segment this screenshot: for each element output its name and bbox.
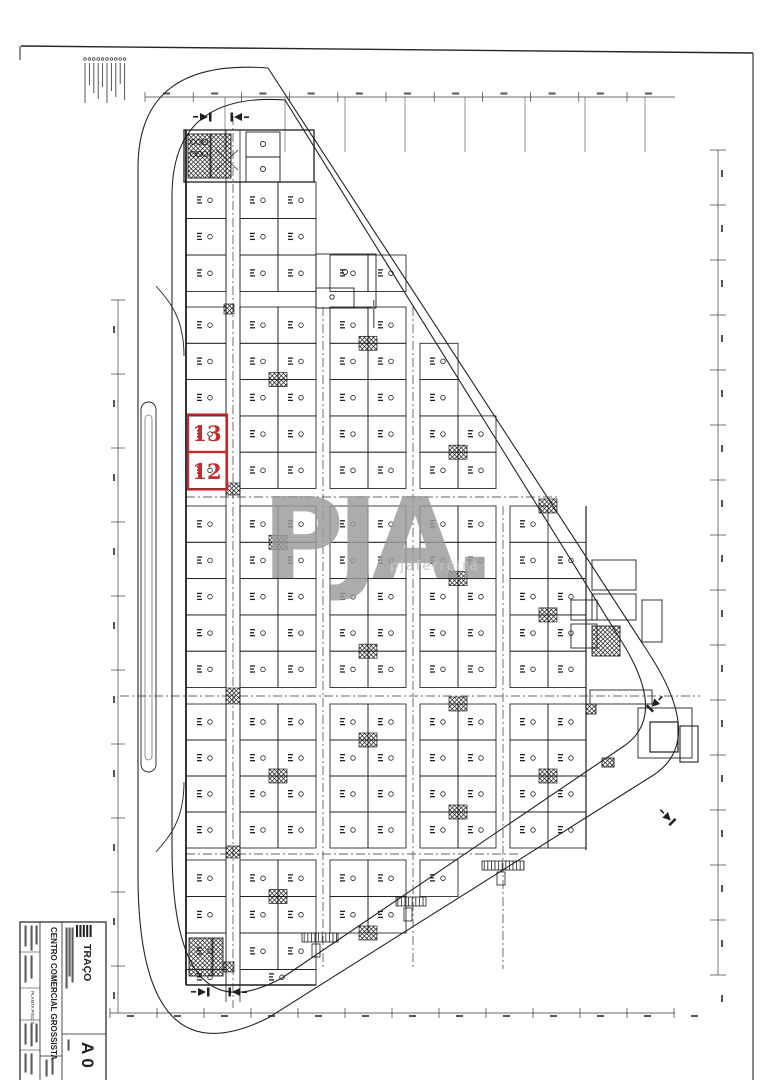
unit-number-mark [288,947,293,948]
corridor-door-core [226,483,240,495]
dim-label [721,995,723,1002]
unit-column-dot [441,756,446,761]
arrow-head [234,113,242,121]
unit-number-mark [250,430,255,431]
arrow-bar [209,113,212,122]
unit-number-mark [520,599,525,600]
unit-number-mark [250,196,255,197]
ramp [302,933,338,942]
unit-number-mark [197,269,202,270]
dim-label [597,1015,604,1017]
unit-column-dot [569,828,574,833]
unit-number-mark [288,950,292,951]
unit-number-mark [558,671,563,672]
unit-cell [186,182,226,219]
unit-number-mark [250,877,254,878]
intersection-core [359,926,377,940]
unit-number-mark [197,724,202,725]
intersection-core [449,445,467,459]
unit-number-mark [520,718,525,719]
median-island-inner [145,415,152,760]
unit-number-mark [340,757,344,758]
unit-number-mark [288,472,293,473]
unit-number-mark [378,635,383,636]
dim-label [356,93,363,95]
unit-number-mark [250,665,255,666]
unit-number-mark [250,668,254,669]
unit-number-mark [197,520,202,521]
unit-number-mark [288,665,293,666]
unit-number-mark [430,436,435,437]
unit-column-dot [569,720,574,725]
unit-number-mark [250,269,255,270]
unit-number-mark [340,357,345,358]
unit-column-dot [479,631,484,636]
micro-text-bar [25,1024,26,1044]
unit-number-mark [378,665,383,666]
unit-number-mark [558,754,563,755]
unit-number-mark [520,832,525,833]
unit-number-mark [197,754,202,755]
unit-column-dot [299,792,304,797]
unit-number-mark [520,562,525,563]
dim-label [404,93,411,95]
unit-number-mark [197,321,202,322]
unit-column-dot [531,828,536,833]
unit-cell [420,651,458,687]
unit-cell [240,933,278,970]
unit-number-mark [378,269,383,270]
unit-number-mark [250,593,255,594]
drawing-title: PLANTA PISO 0 [30,991,35,1025]
unit-number-mark [197,635,202,636]
legend-bullet [119,58,122,61]
unit-cell [330,380,368,416]
arrow-tail [660,809,665,814]
unit-column-dot [531,792,536,797]
unit-column-dot [531,756,536,761]
unit-column-dot [261,876,266,881]
unit-number-mark [520,593,525,594]
unit-number-mark [288,635,293,636]
unit-column-dot [479,720,484,725]
unit-column-dot [208,912,213,917]
unit-column-dot [261,468,266,473]
firm-logo-icon [76,925,92,937]
unit-number-mark [558,721,562,722]
unit-cell [278,182,316,219]
unit-number-mark [558,635,563,636]
unit-number-mark [520,793,524,794]
unit-cell [548,651,586,687]
unit-column-dot [389,667,394,672]
unit-number-mark [430,472,435,473]
unit-number-mark [520,596,524,597]
intersection-core [539,499,557,513]
unit-number-mark [340,911,345,912]
dim-label [721,280,723,287]
unit-number-mark [197,324,201,325]
dim-label [721,940,723,947]
arrow-tail [242,991,247,993]
unit-number-mark [378,793,382,794]
unit-column-dot [441,876,446,881]
unit-number-mark [340,914,344,915]
unit-number-mark [378,718,383,719]
unit-number-mark [250,917,255,918]
unit-cell [186,219,226,256]
unit-number-mark [197,793,201,794]
unit-cell [278,219,316,256]
unit-column-dot [208,756,213,761]
unit-cell [368,860,406,897]
unit-number-mark [520,796,525,797]
unit-number-mark [558,796,563,797]
unit-number-mark [197,275,202,276]
title-block: TRAÇO CENTRO COMERCIAL GROSSISTA PLANTA … [20,922,106,1080]
unit-number-mark [378,360,382,361]
unit-column-dot [441,720,446,725]
unit-number-mark [430,826,435,827]
arrow-tail [244,116,249,118]
arrow-bar [229,988,232,997]
unit-number-mark [250,327,255,328]
unit-number-mark [340,880,345,881]
unit-cell [240,704,278,740]
unit-number-mark [197,629,202,630]
unit-number-mark [340,724,345,725]
unit-number-mark [340,790,345,791]
unit-number-mark [197,596,201,597]
unit-column-dot [441,631,446,636]
unit-number-mark [197,233,202,234]
unit-number-mark [520,635,525,636]
unit-number-mark [378,469,382,470]
micro-text-bar [52,1060,53,1074]
unit-number-mark [288,202,293,203]
dim-label [721,445,723,452]
entrance-arrow [191,988,210,997]
unit-number-mark [468,790,473,791]
unit-column-dot [299,395,304,400]
unit-number-mark [430,724,435,725]
unit-number-mark [197,394,202,395]
unit-number-mark [288,321,293,322]
unit-cell [240,970,316,986]
dim-label [259,93,266,95]
unit-number-mark [430,829,434,830]
unit-cell [420,740,458,776]
unit-column-dot [208,594,213,599]
unit-cell [186,615,226,651]
dim-label [550,1015,557,1017]
unit-number-mark [558,593,563,594]
unit-cell [510,812,548,848]
unit-number-mark [197,526,202,527]
unit-cell [278,812,316,848]
lobby-room [246,132,280,157]
dim-label [211,93,218,95]
unit-number-mark [340,275,345,276]
unit-number-mark [250,520,255,521]
unit-number-mark [197,877,201,878]
unit-column-dot [299,271,304,276]
unit-number-mark [430,668,434,669]
unit-cell [368,416,406,452]
intersection-core [359,733,377,747]
arrow-tail [191,991,196,993]
unit-column-dot [389,432,394,437]
unit-column-dot [299,912,304,917]
unit-number-mark [378,400,383,401]
unit-number-mark [468,760,473,761]
unit-cell [186,704,226,740]
unit-column-dot [389,720,394,725]
unit-column-dot [389,631,394,636]
unit-column-dot [208,323,213,328]
watermark-subtext: pjaferreira [390,559,480,574]
legend-bullet [123,58,126,61]
unit-number-mark [378,433,382,434]
service-core [592,626,620,656]
unit-column-dot [261,631,266,636]
unit-number-mark [430,790,435,791]
unit-column-dot [208,828,213,833]
unit-number-mark [378,829,382,830]
unit-number-mark [288,363,293,364]
unit-number-mark [378,877,382,878]
unit-cell [330,776,368,812]
corridor-door-core [226,688,240,704]
legend-bullet [93,58,96,61]
dim-label [456,1015,463,1017]
firm-name: TRAÇO [81,944,93,981]
unit-number-mark [340,324,344,325]
legend [84,58,126,103]
unit-number-mark [197,668,201,669]
unit-number-mark [430,832,435,833]
unit-number-mark [250,556,255,557]
unit-number-mark [378,272,382,273]
unit-number-mark [340,917,345,918]
unit-column-dot [441,432,446,437]
unit-column-dot [351,359,356,364]
unit-column-dot [261,271,266,276]
unit-cell [420,380,458,416]
intersection-core [539,769,557,783]
unit-number-mark [288,796,293,797]
dim-label [113,918,115,925]
unit-number-mark [197,236,201,237]
unit-number-mark [378,466,383,467]
unit-number-mark [340,826,345,827]
unit-number-mark [288,236,292,237]
intersection-core [449,697,467,711]
micro-text-bar [31,926,32,950]
unit-number-mark [340,793,344,794]
unit-number-mark [250,760,255,761]
unit-column-dot [351,912,356,917]
unit-number-mark [558,826,563,827]
unit-number-mark [250,239,255,240]
dim-label [691,1015,698,1017]
unit-number-mark [378,754,383,755]
unit-number-mark [250,635,255,636]
unit-number-mark [520,790,525,791]
unit-cell [240,219,278,256]
micro-text-bar [46,1060,47,1076]
dim-label [721,390,723,397]
unit-number-mark [520,665,525,666]
unit-number-mark [378,917,383,918]
unit-number-mark [378,430,383,431]
unit-number-mark [197,559,201,560]
unit-number-mark [378,321,383,322]
corridor-door-core [224,962,234,972]
unit-number-mark [430,635,435,636]
dim-label [362,1015,369,1017]
highlighted-units: 13 12 [188,415,227,490]
unit-number-mark [288,832,293,833]
micro-text-bar [31,1054,32,1074]
unit-number-mark [250,874,255,875]
unit-number-mark [378,363,383,364]
unit-number-mark [197,599,202,600]
floorplan-svg: PJA. pjaferreira 13 12 TRAÇO CENTRO COME… [0,0,763,1080]
micro-text-bar [66,928,67,988]
legend-bullet [97,58,100,61]
unit-number-mark [250,950,254,951]
unit-column-dot [351,432,356,437]
unit-number-mark [288,327,293,328]
unit-column-dot [208,792,213,797]
unit-column-dot [441,468,446,473]
unit-number-mark [520,556,525,557]
micro-text-bar [25,1054,26,1072]
unit-number-mark [197,327,202,328]
unit-number-mark [340,632,344,633]
unit-column-dot [389,876,394,881]
unit-number-mark [378,914,382,915]
unit-column-dot [569,756,574,761]
unit-column-dot [208,631,213,636]
dim-label [721,225,723,232]
unit-column-dot [351,792,356,797]
unit-cell [186,740,226,776]
unit-number-mark [250,947,255,948]
unit-column-dot [531,667,536,672]
unit-cell [330,416,368,452]
unit-number-mark [430,433,434,434]
unit-cell [240,307,278,343]
unit-cell [240,651,278,687]
unit-number-mark [250,911,255,912]
dim-label [721,665,723,672]
unit-number-mark [197,665,202,666]
unit-number-mark [288,721,292,722]
unit-column-dot [479,756,484,761]
dim-label [308,93,315,95]
unit-number-mark [468,430,473,431]
unit-number-mark [340,397,344,398]
watermark-logo: PJA. [262,475,489,605]
unit-number-mark [468,472,473,473]
unit-number-mark [288,269,293,270]
legend-bullet [88,58,91,61]
unit-cell [548,704,586,740]
unit-number-mark [430,757,434,758]
unit-number-mark [378,911,383,912]
legend-bullet [84,58,87,61]
unit-number-mark [250,596,254,597]
unit-number-mark [288,196,293,197]
unit-number-mark [378,832,383,833]
unit-number-mark [269,976,273,977]
unit-number-mark [250,599,255,600]
unit-number-mark [250,632,254,633]
dim-label [315,1015,322,1017]
unit-number-mark [250,202,255,203]
unit-number-mark [250,469,254,470]
dim-label [721,720,723,727]
legend-bullet [110,58,113,61]
dim-label [644,1015,651,1017]
unit-number-mark [340,321,345,322]
unit-column-dot [389,323,394,328]
entrance-arrow [657,807,676,826]
unit-number-mark [288,880,293,881]
unit-number-mark [250,562,255,563]
unit-number-mark [250,559,254,560]
unit-column-dot [299,359,304,364]
unit-number-mark [520,668,524,669]
micro-text-bar [25,956,26,982]
unit-number-mark [340,874,345,875]
corridor-door-core [226,846,240,858]
unit-number-mark [197,360,201,361]
unit-number-mark [468,796,473,797]
unit-column-dot [299,720,304,725]
unit-number-mark [288,877,292,878]
unit-number-mark [558,832,563,833]
unit-number-mark [250,914,254,915]
unit-column-dot [261,359,266,364]
unit-number-mark [340,668,344,669]
intersection-core [269,890,287,904]
micro-text-bar [69,928,70,976]
unit-number-mark [468,757,472,758]
unit-number-mark [340,400,345,401]
unit-number-mark [250,671,255,672]
unit-number-mark [288,239,293,240]
micro-text-bar [36,1024,37,1042]
unit-number-mark [430,718,435,719]
unit-column-dot [531,720,536,725]
intersection-core [539,608,557,622]
unit-number-mark [520,826,525,827]
road-curve-top [156,286,184,356]
unit-number-mark [378,327,383,328]
unit-cell [240,615,278,651]
unit-number-mark [378,724,383,725]
unit-cell [186,812,226,848]
unit-column-dot [208,198,213,203]
arrow-tail [193,116,198,118]
unit-column-dot [351,323,356,328]
unit-column-dot [261,432,266,437]
unit-number-mark [288,466,293,467]
unit-column-dot [208,234,213,239]
